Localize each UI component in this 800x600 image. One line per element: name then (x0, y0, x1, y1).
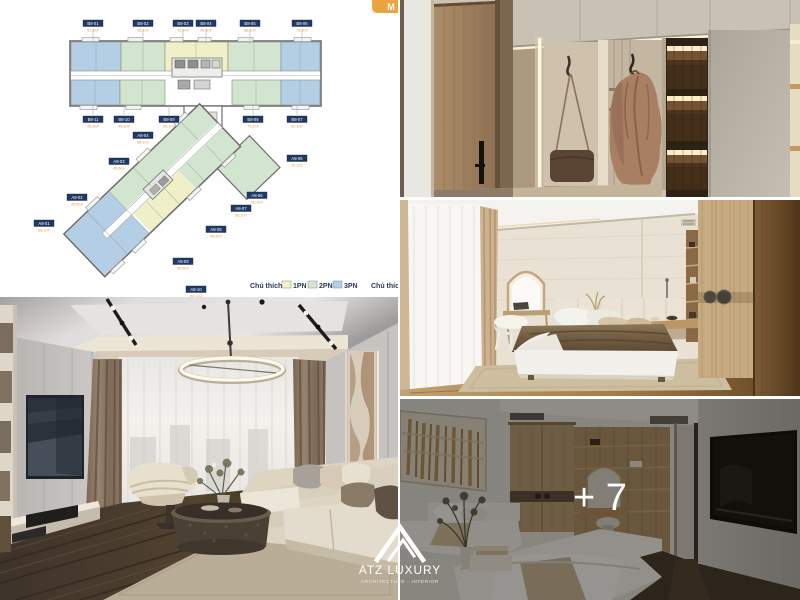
svg-text:68.1m²: 68.1m² (163, 125, 176, 129)
svg-text:B8-05: B8-05 (244, 21, 256, 26)
svg-text:45.6m²: 45.6m² (177, 29, 190, 33)
svg-text:68.1m²: 68.1m² (137, 141, 150, 145)
svg-text:A8-05: A8-05 (291, 156, 303, 161)
svg-text:B8-10: B8-10 (118, 117, 130, 122)
svg-text:45.6m²: 45.6m² (210, 235, 223, 239)
svg-text:B8-07: B8-07 (291, 117, 303, 122)
svg-text:M: M (387, 2, 395, 12)
svg-text:52.3m²: 52.3m² (87, 29, 100, 33)
svg-text:A8-04: A8-04 (137, 133, 149, 138)
svg-text:3PN: 3PN (344, 283, 358, 290)
svg-text:A8-10: A8-10 (190, 287, 202, 292)
svg-text:1PN: 1PN (293, 283, 307, 290)
svg-text:B8-01: B8-01 (87, 21, 99, 26)
svg-text:45.6m²: 45.6m² (118, 125, 131, 129)
svg-text:A8-03: A8-03 (113, 159, 125, 164)
svg-text:68.1m²: 68.1m² (244, 29, 257, 33)
svg-text:52.3m²: 52.3m² (291, 125, 304, 129)
svg-text:Chú thích: Chú thích (371, 283, 398, 290)
svg-text:45.6m²: 45.6m² (113, 167, 126, 171)
svg-text:75.2m²: 75.2m² (247, 125, 260, 129)
svg-text:+ 7: + 7 (573, 477, 627, 519)
svg-text:A8-09: A8-09 (177, 259, 189, 264)
svg-text:ATZ LUXURY: ATZ LUXURY (359, 563, 441, 577)
svg-text:52.3m²: 52.3m² (251, 201, 264, 205)
svg-text:75.2m²: 75.2m² (296, 29, 309, 33)
svg-text:B8-03: B8-03 (177, 21, 189, 26)
svg-text:45.6m²: 45.6m² (71, 203, 84, 207)
svg-text:B8-04: B8-04 (200, 21, 212, 26)
svg-text:45.6m²: 45.6m² (200, 29, 213, 33)
svg-text:68.1m²: 68.1m² (235, 214, 248, 218)
svg-text:68.1m²: 68.1m² (38, 229, 51, 233)
svg-text:A8-08: A8-08 (210, 227, 222, 232)
svg-text:Chú thích:: Chú thích: (250, 283, 285, 290)
svg-text:45.6m²: 45.6m² (177, 267, 190, 271)
svg-text:A8-07: A8-07 (235, 206, 247, 211)
svg-text:B8-02: B8-02 (137, 21, 149, 26)
svg-text:B8-11: B8-11 (88, 117, 100, 122)
svg-text:A8-02: A8-02 (71, 195, 83, 200)
svg-text:B8-09: B8-09 (163, 117, 175, 122)
svg-text:A8-01: A8-01 (38, 221, 50, 226)
svg-text:45.6m²: 45.6m² (87, 125, 100, 129)
svg-text:B8-06: B8-06 (296, 21, 308, 26)
svg-text:2PN: 2PN (319, 283, 333, 290)
svg-text:B8-08: B8-08 (247, 117, 259, 122)
svg-text:68.1m²: 68.1m² (137, 29, 150, 33)
svg-text:75.2m²: 75.2m² (291, 164, 304, 168)
svg-text:A8-06: A8-06 (251, 193, 263, 198)
svg-text:ARCHITECTURE - INTERIOR: ARCHITECTURE - INTERIOR (361, 579, 439, 584)
